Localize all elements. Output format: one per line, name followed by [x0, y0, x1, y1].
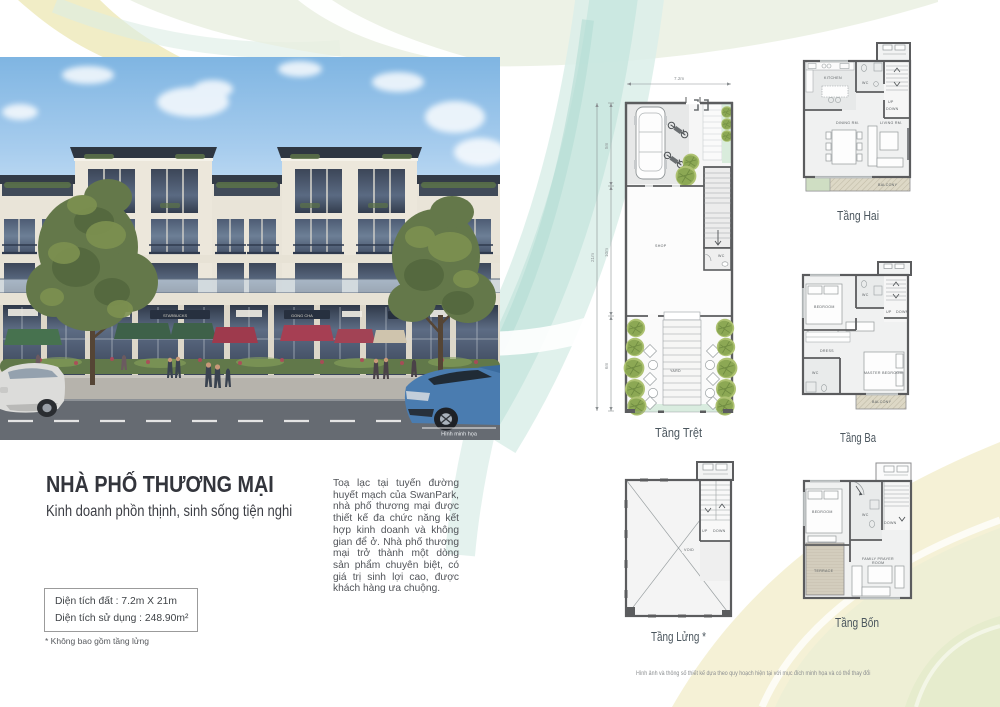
svg-text:Tầng Trệt: Tầng Trệt	[655, 426, 702, 440]
svg-text:YARD: YARD	[670, 369, 681, 373]
svg-text:BALCONY: BALCONY	[872, 400, 892, 404]
svg-text:Tầng Bốn: Tầng Bốn	[835, 616, 879, 630]
svg-text:WC: WC	[812, 371, 819, 375]
svg-text:BALCONY: BALCONY	[878, 183, 898, 187]
svg-text:UP: UP	[888, 100, 894, 104]
svg-text:Tầng Ba: Tầng Ba	[840, 431, 876, 445]
svg-text:UP: UP	[702, 529, 708, 533]
svg-text:TERRACE: TERRACE	[814, 569, 834, 573]
svg-text:Tầng Lửng *: Tầng Lửng *	[651, 630, 706, 644]
svg-text:DINING RM.: DINING RM.	[836, 121, 859, 125]
svg-text:10m: 10m	[604, 248, 609, 257]
svg-text:7.2m: 7.2m	[674, 76, 684, 81]
svg-text:LIVING RM.: LIVING RM.	[880, 121, 902, 125]
svg-text:DOWN: DOWN	[713, 529, 726, 533]
svg-text:BEDROOM: BEDROOM	[812, 510, 833, 514]
svg-text:DOWN: DOWN	[884, 521, 897, 525]
svg-text:21m: 21m	[590, 253, 595, 262]
svg-text:5m: 5m	[604, 142, 609, 149]
svg-text:WC: WC	[718, 254, 725, 258]
svg-text:WC: WC	[862, 513, 869, 517]
svg-text:MASTER BEDROOM: MASTER BEDROOM	[864, 371, 903, 375]
svg-text:KITCHEN: KITCHEN	[824, 76, 842, 80]
svg-text:BEDROOM: BEDROOM	[814, 305, 835, 309]
svg-text:Tầng Hai: Tầng Hai	[837, 209, 879, 223]
svg-text:DRESS: DRESS	[820, 349, 834, 353]
svg-text:UP: UP	[886, 310, 892, 314]
svg-text:VOID: VOID	[684, 548, 694, 552]
svg-text:DOWN: DOWN	[886, 107, 899, 111]
svg-text:ROOM: ROOM	[872, 561, 884, 565]
svg-text:WC: WC	[862, 81, 869, 85]
svg-text:6m: 6m	[604, 362, 609, 369]
svg-text:DOWN: DOWN	[896, 310, 909, 314]
svg-text:SHOP: SHOP	[655, 244, 667, 248]
svg-text:WC: WC	[862, 293, 869, 297]
